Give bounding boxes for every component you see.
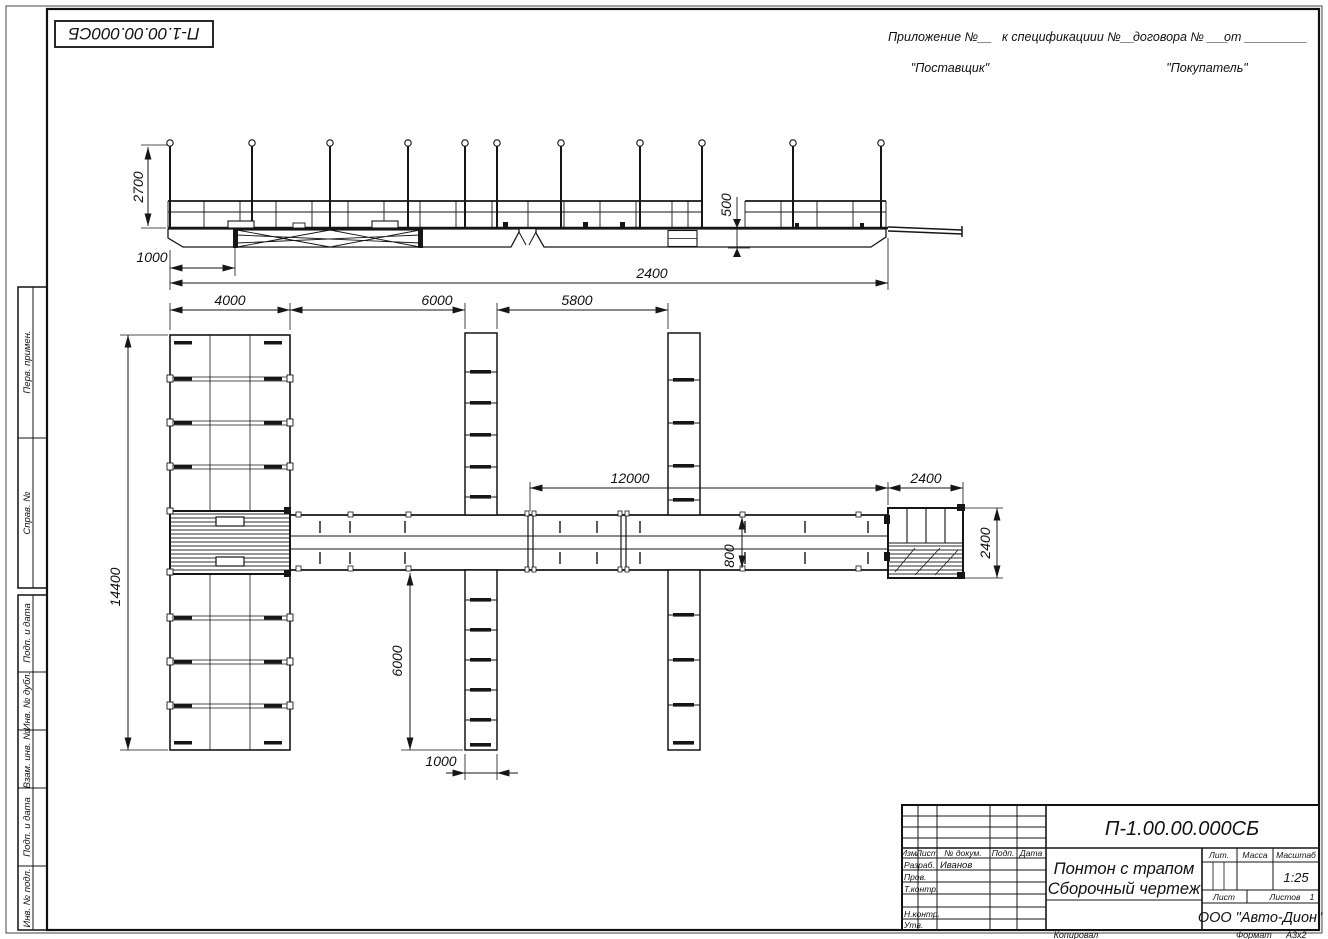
stamp-podp-data-2: Подп. и дата [22,797,33,856]
dim-plan-walkway-length: 12000 [611,470,650,486]
tb-row-razrab: Разраб. [904,860,935,870]
tb-row-utv: Утв. [903,920,923,930]
supplier-label: "Поставщик" [911,61,990,75]
title-block: П-1.00.00.000СБ Изм. Лист № докум. Подп.… [901,805,1323,930]
flipped-docnumber-text: П-1.00.00.000СБ [68,24,199,43]
tb-col-doc: № докум. [944,848,981,858]
tb-row-nkontr: Н.контр. [904,909,940,919]
tb-developer-name: Иванов [940,860,972,871]
tb-mass-label: Масса [1242,850,1267,860]
tb-col-data: Дата [1019,848,1043,858]
pontoon-side-view [167,140,962,248]
tb-scale-label: Масштаб [1276,850,1317,860]
dim-side-hull-height: 500 [718,193,734,217]
tb-company: ООО "Авто-Дион" [1198,910,1323,926]
footer-format-value: А3х2 [1285,930,1307,939]
buyer-label: "Покупатель" [1166,61,1248,75]
tb-row-tkontr: Т.контр. [904,884,938,894]
appendix-part1: Приложение №__ [888,30,992,44]
tb-col-list: Лист [915,848,938,858]
flipped-docnumber-stamp: П-1.00.00.000СБ [55,21,213,47]
dim-side-ramp-offset: 1000 [136,249,167,265]
tb-lit-label: Лит. [1208,850,1229,860]
tb-title-line1: Понтон с трапом [1054,860,1195,878]
stamp-sprav-no: Справ. № [22,491,33,534]
stamp-inv-podl: Инв. № подл. [22,869,33,928]
footer-format-label: Формат [1236,930,1272,939]
appendix-part4: от _________ [1224,30,1307,44]
tb-title-line2: Сборочный чертеж [1048,880,1201,898]
tb-scale-value: 1:25 [1283,870,1309,885]
tb-row-prov: Пров. [904,872,926,882]
pontoon-plan-view [167,333,965,750]
dim-plan-platform-width: 2400 [977,527,993,559]
dim-plan-gap2: 5800 [561,292,592,308]
stamp-vzam-inv: Взам. инв. № [22,730,33,789]
appendix-part3: договора № ___ [1133,30,1228,44]
dim-plan-pier-width: 4000 [214,292,245,308]
drawing-canvas: П-1.00.00.000СБ Приложение №__ к специфи… [0,0,1328,939]
appendix-part2: к спецификациии №__ [1002,30,1135,44]
tb-sheets-count: 1 [1310,892,1315,902]
stamp-perv-primen: Перв. примен. [22,330,33,393]
tb-sheets-label: Листов [1269,892,1302,902]
dim-plan-pier-length: 14400 [107,567,123,606]
dim-side-post-height: 2700 [130,171,146,203]
footer-copied: Копировал [1054,930,1099,939]
stamp-inv-dubl: Инв. № дубл. [22,672,33,730]
drawing-sheet: П-1.00.00.000СБ Приложение №__ к специфи… [0,0,1328,939]
dim-plan-finger-length: 6000 [389,645,405,676]
appendix-header: Приложение №__ к спецификациии №__ догов… [888,30,1307,75]
dim-plan-walkway-width: 800 [721,544,737,568]
left-margin-stamps: Перв. примен. Справ. № Подп. и дата Инв.… [18,287,47,930]
tb-doc-number: П-1.00.00.000СБ [1105,818,1259,840]
sheet-footer: Копировал Формат А3х2 [1054,930,1307,939]
tb-sheet-label: Лист [1212,892,1235,902]
dim-plan-platform-length: 2400 [909,470,941,486]
tb-col-podp: Подп. [992,848,1015,858]
dim-plan-finger-width: 1000 [425,753,456,769]
dim-side-total: 2400 [635,265,667,281]
dim-plan-gap1: 6000 [421,292,452,308]
stamp-podp-data-1: Подп. и дата [22,603,33,662]
